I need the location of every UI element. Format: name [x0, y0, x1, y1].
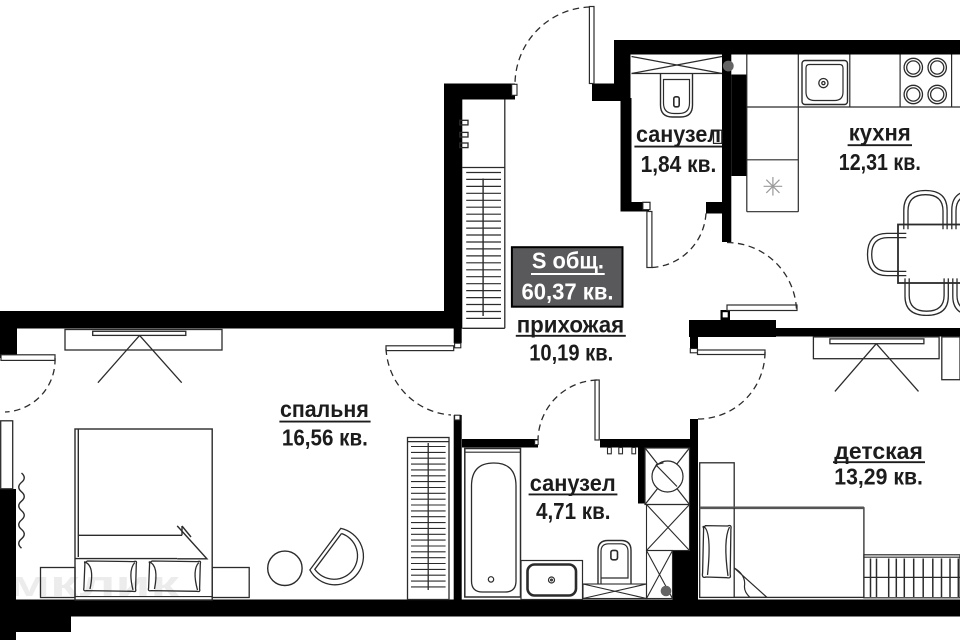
svg-text:кухня: кухня [849, 120, 911, 146]
svg-text:санузел: санузел [530, 470, 616, 496]
svg-text:спальня: спальня [280, 396, 369, 422]
svg-text:1,84 кв.: 1,84 кв. [641, 151, 717, 177]
svg-text:60,37 кв.: 60,37 кв. [522, 279, 614, 305]
svg-text:детская: детская [834, 438, 923, 464]
svg-text:S общ.: S общ. [532, 248, 604, 274]
svg-text:10,19 кв.: 10,19 кв. [529, 340, 613, 366]
svg-text:4,71 кв.: 4,71 кв. [536, 498, 611, 524]
svg-text:16,56 кв.: 16,56 кв. [282, 425, 368, 451]
svg-text:12,31 кв.: 12,31 кв. [839, 149, 921, 175]
svg-text:прихожая: прихожая [517, 312, 625, 338]
svg-text:13,29 кв.: 13,29 кв. [834, 464, 923, 490]
svg-text:санузел: санузел [636, 121, 721, 147]
